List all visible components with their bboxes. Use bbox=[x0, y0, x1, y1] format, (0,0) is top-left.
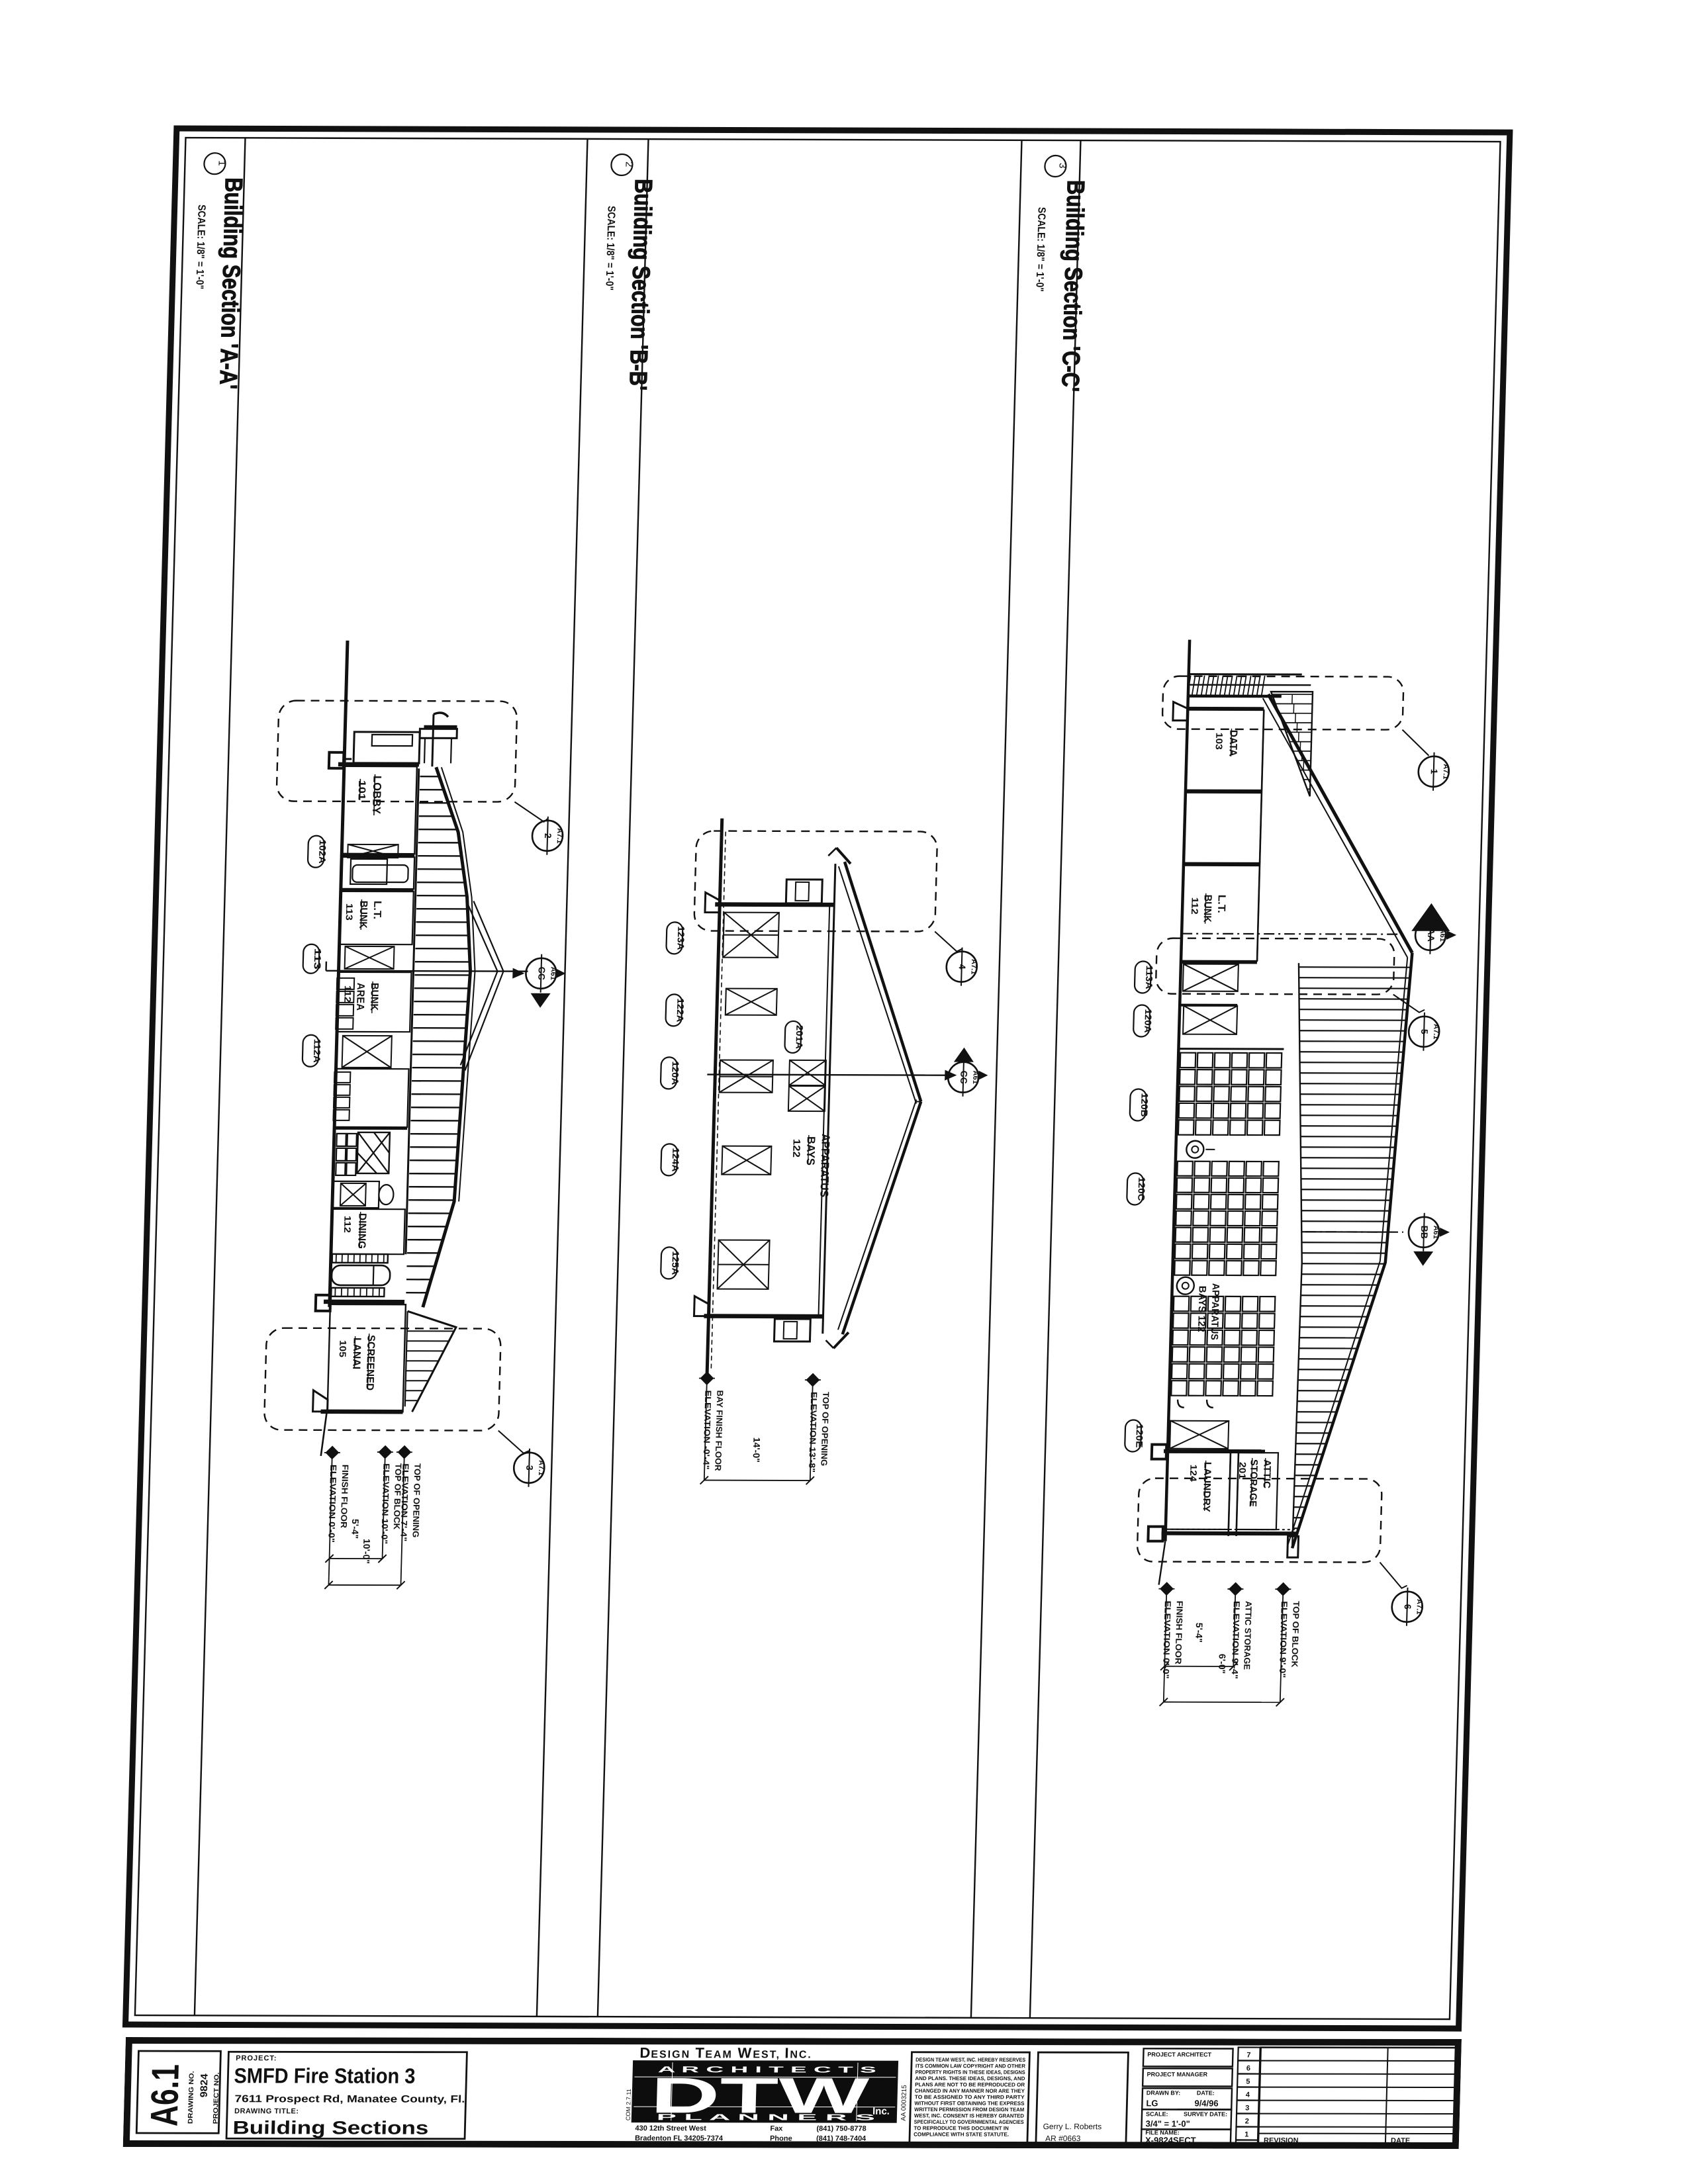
svg-text:1: 1 bbox=[216, 160, 227, 165]
svg-text:Fax: Fax bbox=[770, 2124, 783, 2132]
svg-text:WEST, INC. CONSENT IS HEREBY G: WEST, INC. CONSENT IS HEREBY GRANTED bbox=[914, 2113, 1024, 2118]
svg-text:122: 122 bbox=[790, 1139, 802, 1158]
svg-text:14'-0": 14'-0" bbox=[751, 1437, 763, 1463]
svg-text:SCALE: 1/8" = 1'-0": SCALE: 1/8" = 1'-0" bbox=[1033, 207, 1047, 292]
svg-text:L.T.: L.T. bbox=[371, 901, 383, 919]
svg-text:3: 3 bbox=[1056, 163, 1068, 168]
svg-text:Phone: Phone bbox=[770, 2134, 792, 2142]
svg-text:STORAGE: STORAGE bbox=[1247, 1459, 1260, 1507]
svg-text:PROPERTY RIGHTS IN THESE IDEAS: PROPERTY RIGHTS IN THESE IDEAS, DESIGNS bbox=[915, 2070, 1026, 2075]
svg-text:3/4" = 1'-0": 3/4" = 1'-0" bbox=[1145, 2118, 1190, 2128]
svg-text:113A: 113A bbox=[1144, 966, 1155, 989]
svg-text:TOP OF OPENING: TOP OF OPENING bbox=[410, 1463, 422, 1537]
svg-text:A61: A61 bbox=[971, 1071, 980, 1084]
svg-text:EST,: EST, bbox=[753, 2049, 780, 2060]
svg-text:ESIGN: ESIGN bbox=[651, 2049, 690, 2060]
svg-text:2: 2 bbox=[543, 833, 553, 839]
svg-text:CC: CC bbox=[959, 1071, 970, 1084]
svg-text:124A: 124A bbox=[670, 1148, 681, 1171]
svg-text:4: 4 bbox=[1246, 2091, 1250, 2099]
svg-text:ATTIC STORAGE: ATTIC STORAGE bbox=[1242, 1601, 1254, 1670]
svg-text:COM 2.7.11: COM 2.7.11 bbox=[625, 2089, 632, 2120]
svg-text:9/4/96: 9/4/96 bbox=[1194, 2098, 1219, 2108]
svg-text:124: 124 bbox=[1188, 1465, 1199, 1482]
svg-text:(841) 750-8778: (841) 750-8778 bbox=[816, 2125, 867, 2133]
svg-text:SCALE: 1/8" = 1'-0": SCALE: 1/8" = 1'-0" bbox=[193, 205, 207, 289]
svg-text:A7.1: A7.1 bbox=[1441, 764, 1450, 779]
svg-text:A6.1: A6.1 bbox=[142, 2064, 187, 2126]
svg-text:9824: 9824 bbox=[199, 2073, 211, 2097]
svg-text:5: 5 bbox=[1246, 2078, 1250, 2086]
svg-text:A7.1: A7.1 bbox=[969, 959, 978, 974]
svg-text:5'-4": 5'-4" bbox=[350, 1519, 361, 1539]
svg-text:AA 0003215: AA 0003215 bbox=[900, 2085, 908, 2121]
svg-text:Building Section 'C-C': Building Section 'C-C' bbox=[1056, 180, 1090, 392]
svg-text:ITS COMMON LAW COPYRIGHT AND O: ITS COMMON LAW COPYRIGHT AND OTHER bbox=[915, 2063, 1025, 2069]
svg-text:BUNK: BUNK bbox=[357, 901, 369, 929]
svg-text:113: 113 bbox=[344, 903, 355, 921]
svg-text:102A: 102A bbox=[317, 840, 328, 864]
svg-text:1: 1 bbox=[1429, 769, 1440, 774]
svg-text:5: 5 bbox=[1419, 1029, 1430, 1034]
svg-text:Building Section 'A-A': Building Section 'A-A' bbox=[214, 177, 248, 389]
svg-text:DRAWING NO.: DRAWING NO. bbox=[187, 2071, 196, 2124]
svg-text:120A: 120A bbox=[1143, 1009, 1154, 1033]
svg-text:WITHOUT FIRST OBTAINING THE EX: WITHOUT FIRST OBTAINING THE EXPRESS bbox=[914, 2101, 1025, 2107]
svg-text:Building Sections: Building Sections bbox=[232, 2117, 429, 2138]
svg-text:7: 7 bbox=[1246, 2052, 1250, 2060]
svg-text:P L A N N E R S: P L A N N E R S bbox=[657, 2112, 876, 2122]
svg-text:Building Section 'B-B': Building Section 'B-B' bbox=[624, 179, 657, 390]
svg-text:T: T bbox=[695, 2044, 705, 2061]
svg-text:BB: BB bbox=[1419, 1226, 1430, 1239]
svg-text:ELEVATION 7'-4": ELEVATION 7'-4" bbox=[399, 1463, 410, 1541]
svg-text:LANAI: LANAI bbox=[350, 1338, 362, 1369]
svg-text:PROJECT:: PROJECT: bbox=[236, 2054, 277, 2062]
svg-text:120C: 120C bbox=[1136, 1177, 1147, 1201]
svg-text:AR #0663: AR #0663 bbox=[1045, 2134, 1081, 2143]
svg-text:AA: AA bbox=[1426, 929, 1437, 942]
svg-text:103: 103 bbox=[1214, 733, 1225, 750]
svg-text:4: 4 bbox=[957, 964, 968, 970]
svg-text:REVISION: REVISION bbox=[1264, 2137, 1299, 2145]
svg-text:NC.: NC. bbox=[790, 2050, 812, 2061]
svg-text:ELEVATION 0'-0": ELEVATION 0'-0" bbox=[326, 1465, 338, 1543]
svg-text:7611 Prospect Rd, Manatee: 7611 Prospect Rd, Manatee County, Fl. bbox=[234, 2093, 465, 2105]
svg-text:I: I bbox=[784, 2044, 789, 2061]
svg-text:SCALE: 1/8" = 1'-0": SCALE: 1/8" = 1'-0" bbox=[603, 206, 616, 291]
svg-text:105: 105 bbox=[338, 1340, 349, 1357]
svg-text:D: D bbox=[639, 2044, 651, 2061]
svg-text:112: 112 bbox=[342, 985, 353, 1003]
svg-text:201: 201 bbox=[1237, 1462, 1248, 1479]
svg-text:PROJECT MANAGER: PROJECT MANAGER bbox=[1147, 2071, 1207, 2077]
svg-text:BAYS: BAYS bbox=[804, 1136, 818, 1165]
svg-text:3: 3 bbox=[524, 1465, 535, 1471]
svg-text:113: 113 bbox=[312, 948, 324, 970]
svg-text:SCREENED: SCREENED bbox=[363, 1335, 376, 1390]
svg-text:DINING: DINING bbox=[355, 1213, 367, 1249]
svg-text:ELEVATION 13'-8": ELEVATION 13'-8" bbox=[807, 1392, 819, 1473]
svg-text:A7.1: A7.1 bbox=[537, 1460, 545, 1475]
svg-text:2: 2 bbox=[623, 161, 634, 167]
svg-text:Gerry L. Roberts: Gerry L. Roberts bbox=[1043, 2122, 1102, 2131]
svg-text:ATTIC: ATTIC bbox=[1261, 1459, 1273, 1488]
svg-text:1: 1 bbox=[1244, 2131, 1248, 2139]
svg-text:SCALE:: SCALE: bbox=[1146, 2111, 1168, 2117]
svg-text:ELEVATION 9'-4": ELEVATION 9'-4" bbox=[1230, 1601, 1242, 1679]
svg-text:DESIGN TEAM WEST, INC. HEREBY: DESIGN TEAM WEST, INC. HEREBY RESERVES bbox=[915, 2057, 1026, 2063]
svg-text:120B: 120B bbox=[1139, 1093, 1150, 1116]
svg-text:ELEVATION 9'-0": ELEVATION 9'-0" bbox=[1278, 1601, 1289, 1678]
svg-text:5'-4": 5'-4" bbox=[1194, 1623, 1205, 1643]
svg-text:A61: A61 bbox=[1432, 1226, 1440, 1239]
svg-text:LG: LG bbox=[1146, 2098, 1158, 2108]
svg-text:A7.1: A7.1 bbox=[1432, 1024, 1440, 1039]
svg-text:ELEVATION 0'-0": ELEVATION 0'-0" bbox=[1161, 1601, 1173, 1679]
svg-text:SURVEY DATE:: SURVEY DATE: bbox=[1184, 2111, 1227, 2117]
svg-text:CC: CC bbox=[536, 967, 547, 980]
svg-text:112: 112 bbox=[1190, 897, 1201, 915]
svg-text:CHANGED IN ANY MANNER NOR ARE: CHANGED IN ANY MANNER NOR ARE THEY bbox=[915, 2088, 1025, 2094]
svg-text:SPECIFICALLY TO GOVERNMENTAL A: SPECIFICALLY TO GOVERNMENTAL AGENCIES bbox=[914, 2119, 1025, 2125]
svg-text:AREA: AREA bbox=[354, 983, 366, 1011]
svg-text:L.T.: L.T. bbox=[1215, 895, 1227, 913]
svg-text:6'-0": 6'-0" bbox=[1217, 1654, 1228, 1674]
svg-text:TOP OF BLOCK: TOP OF BLOCK bbox=[1289, 1601, 1301, 1668]
svg-text:TO REPRODUCE THIS DOCUMENT IN: TO REPRODUCE THIS DOCUMENT IN bbox=[914, 2125, 1009, 2131]
svg-text:ELEVATION 10'-0": ELEVATION 10'-0" bbox=[379, 1463, 391, 1544]
svg-text:DATA: DATA bbox=[1227, 730, 1239, 756]
svg-text:120E: 120E bbox=[1134, 1424, 1145, 1448]
svg-text:DRAWING TITLE:: DRAWING TITLE: bbox=[234, 2107, 299, 2115]
svg-text:WRITTEN PERMISSION FROM DESIGN: WRITTEN PERMISSION FROM DESIGN TEAM bbox=[914, 2107, 1025, 2113]
svg-text:123A: 123A bbox=[675, 926, 686, 950]
svg-text:SMFD Fire Station 3: SMFD Fire Station 3 bbox=[234, 2064, 416, 2087]
svg-text:112A: 112A bbox=[312, 1039, 323, 1063]
svg-text:125A: 125A bbox=[670, 1251, 681, 1275]
svg-text:ELEVATION -0'-4": ELEVATION -0'-4" bbox=[701, 1390, 713, 1470]
svg-text:LOBBY: LOBBY bbox=[370, 776, 384, 815]
svg-text:X-9824SECT: X-9824SECT bbox=[1145, 2135, 1196, 2145]
svg-text:DATE: DATE bbox=[1391, 2137, 1410, 2145]
svg-text:112: 112 bbox=[342, 1216, 353, 1233]
svg-text:DRAWN BY:: DRAWN BY: bbox=[1147, 2089, 1181, 2096]
svg-text:TOP OF OPENING: TOP OF OPENING bbox=[819, 1392, 831, 1466]
svg-text:PROJECT ARCHITECT: PROJECT ARCHITECT bbox=[1147, 2051, 1211, 2058]
svg-text:LAUNDRY: LAUNDRY bbox=[1201, 1462, 1213, 1512]
svg-text:430 12th Street West: 430 12th Street West bbox=[635, 2124, 706, 2132]
svg-text:2: 2 bbox=[1245, 2118, 1249, 2126]
svg-text:COMPLIANCE WITH STATE STATUTE.: COMPLIANCE WITH STATE STATUTE. bbox=[914, 2132, 1009, 2138]
svg-text:BUNK: BUNK bbox=[368, 983, 380, 1011]
svg-text:EAM: EAM bbox=[705, 2049, 733, 2060]
svg-text:A61: A61 bbox=[549, 967, 557, 980]
svg-text:A61: A61 bbox=[1438, 929, 1447, 942]
svg-text:(841) 748-7404: (841) 748-7404 bbox=[816, 2135, 867, 2143]
svg-text:FINISH FLOOR: FINISH FLOOR bbox=[1173, 1601, 1185, 1665]
svg-text:W: W bbox=[737, 2044, 752, 2061]
svg-text:BUNK: BUNK bbox=[1201, 895, 1213, 923]
svg-text:TO BE ASSIGNED TO ANY THIRD PA: TO BE ASSIGNED TO ANY THIRD PARTY bbox=[915, 2094, 1025, 2100]
svg-text:6: 6 bbox=[1246, 2065, 1250, 2073]
svg-text:10'-0": 10'-0" bbox=[361, 1539, 372, 1564]
svg-text:A7.1: A7.1 bbox=[1415, 1599, 1423, 1614]
svg-text:A7.1: A7.1 bbox=[555, 828, 564, 843]
svg-text:PLANS ARE NOT TO BE REPRODUCED: PLANS ARE NOT TO BE REPRODUCED OR bbox=[915, 2081, 1025, 2087]
svg-text:122A: 122A bbox=[675, 998, 686, 1022]
svg-text:BAY FINISH FLOOR: BAY FINISH FLOOR bbox=[713, 1390, 725, 1472]
svg-text:PROJECT NO.: PROJECT NO. bbox=[212, 2072, 221, 2124]
svg-text:Bradenton FL 34205-7374: Bradenton FL 34205-7374 bbox=[635, 2134, 724, 2142]
svg-text:201A: 201A bbox=[794, 1025, 805, 1049]
svg-text:3: 3 bbox=[1245, 2105, 1249, 2113]
svg-text:101: 101 bbox=[355, 780, 367, 800]
svg-text:120A: 120A bbox=[670, 1061, 681, 1085]
svg-text:APPARATUS: APPARATUS bbox=[818, 1134, 832, 1197]
svg-text:6: 6 bbox=[1403, 1604, 1413, 1610]
svg-text:DATE:: DATE: bbox=[1197, 2089, 1215, 2096]
svg-text:FINISH FLOOR: FINISH FLOOR bbox=[339, 1465, 351, 1529]
svg-text:AND PLANS. THESE IDEAS, DESIGN: AND PLANS. THESE IDEAS, DESIGNS, AND bbox=[915, 2075, 1025, 2081]
